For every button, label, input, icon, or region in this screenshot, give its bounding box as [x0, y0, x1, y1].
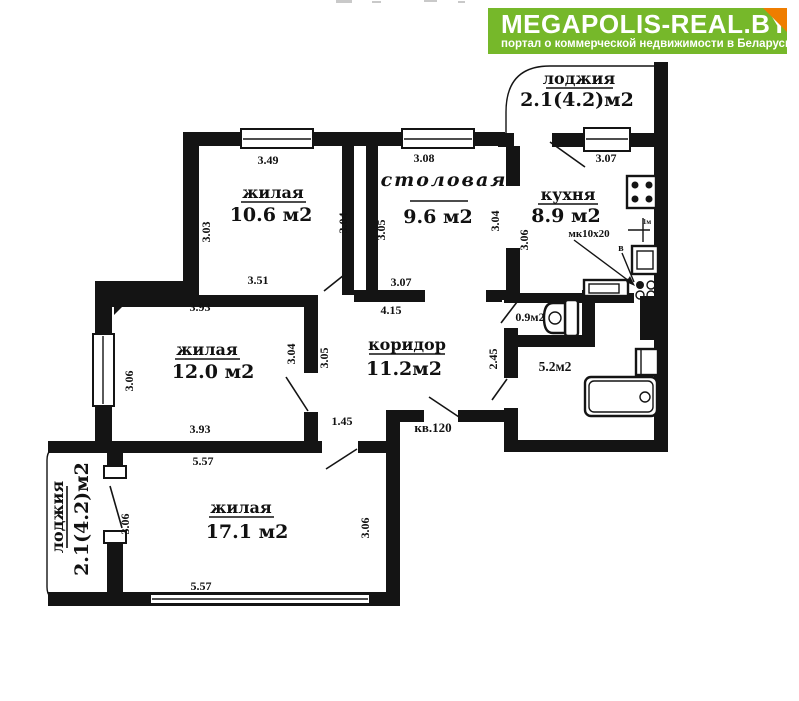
living1-name: жилая — [242, 183, 304, 202]
living2-name: жилая — [176, 340, 238, 359]
washer-icon — [636, 349, 658, 375]
corridor-name: коридор — [368, 335, 446, 354]
living3-name: жилая — [210, 498, 272, 517]
kitchen-note: мк10х20 — [568, 228, 610, 240]
living3-area: 17.1 м2 — [206, 521, 289, 543]
dim-kitchen-top: 3.07 — [596, 151, 617, 165]
bathroom-area: 5.2м2 — [539, 359, 572, 374]
dining-area: 9.6 м2 — [403, 206, 472, 228]
dim-dining-right: 3.04 — [488, 211, 502, 232]
corridor-area: 11.2м2 — [366, 358, 442, 380]
loggia-bottom-name: лоджия — [48, 481, 67, 554]
toilet-icon — [544, 300, 578, 336]
living1-area: 10.6 м2 — [230, 204, 313, 226]
kitchen-name: кухня — [541, 185, 596, 204]
dim-vent-width: 1м — [643, 218, 652, 226]
dim-corridor-pass: 1.45 — [332, 414, 353, 428]
loggia-top-area: 2.1(4.2)м2 — [520, 89, 634, 111]
dim-living1-right: 3.04 — [336, 213, 350, 234]
wc-area: 0.9м2 — [515, 310, 544, 324]
dim-living2-top: 3.93 — [190, 300, 211, 314]
loggia-bottom-area: 2.1(4.2)м2 — [71, 462, 93, 576]
dim-living1-top: 3.49 — [258, 153, 279, 167]
dim-living1-bottom: 3.51 — [248, 273, 269, 287]
dim-dining-top: 3.08 — [414, 151, 435, 165]
loggia-top-name: лоджия — [543, 69, 616, 88]
dim-living3-right: 3.06 — [358, 518, 372, 539]
dim-living2-bottom: 3.93 — [190, 422, 211, 436]
kitchen-area: 8.9 м2 — [531, 205, 600, 227]
dim-dining-bottom: 3.07 — [391, 275, 412, 289]
dim-living3-bottom: 5.57 — [191, 579, 212, 593]
dim-living2-outer: 3.05 — [317, 348, 331, 369]
dim-living3-left: 3.06 — [118, 514, 132, 535]
dim-corridor-right: 2.45 — [486, 349, 500, 370]
dim-living3-top: 5.57 — [193, 454, 214, 468]
living2-area: 12.0 м2 — [172, 361, 255, 383]
vent-letter: в — [618, 243, 624, 254]
sink-icon — [632, 246, 658, 274]
dim-corridor-top: 4.15 — [381, 303, 402, 317]
floorplan-drawing: лоджия 2.1(4.2)м2 жилая 10.6 м2 столовая… — [0, 0, 799, 701]
scan-artifacts — [336, 0, 465, 3]
dim-living1-left: 3.03 — [199, 222, 213, 243]
floorplan-page: MEGAPOLIS-REAL.BY портал о коммерческой … — [0, 0, 799, 701]
dining-name: столовая — [381, 169, 508, 191]
counter-icon — [584, 280, 628, 296]
apartment-number: кв.120 — [414, 420, 451, 435]
stove-icon — [627, 176, 656, 208]
bathtub-icon — [585, 377, 657, 416]
dim-living2-right: 3.04 — [284, 344, 298, 365]
dim-living2-left: 3.06 — [122, 371, 136, 392]
dim-dining-left: 3.05 — [374, 220, 388, 241]
dim-kitchen-left: 3.06 — [517, 230, 531, 251]
